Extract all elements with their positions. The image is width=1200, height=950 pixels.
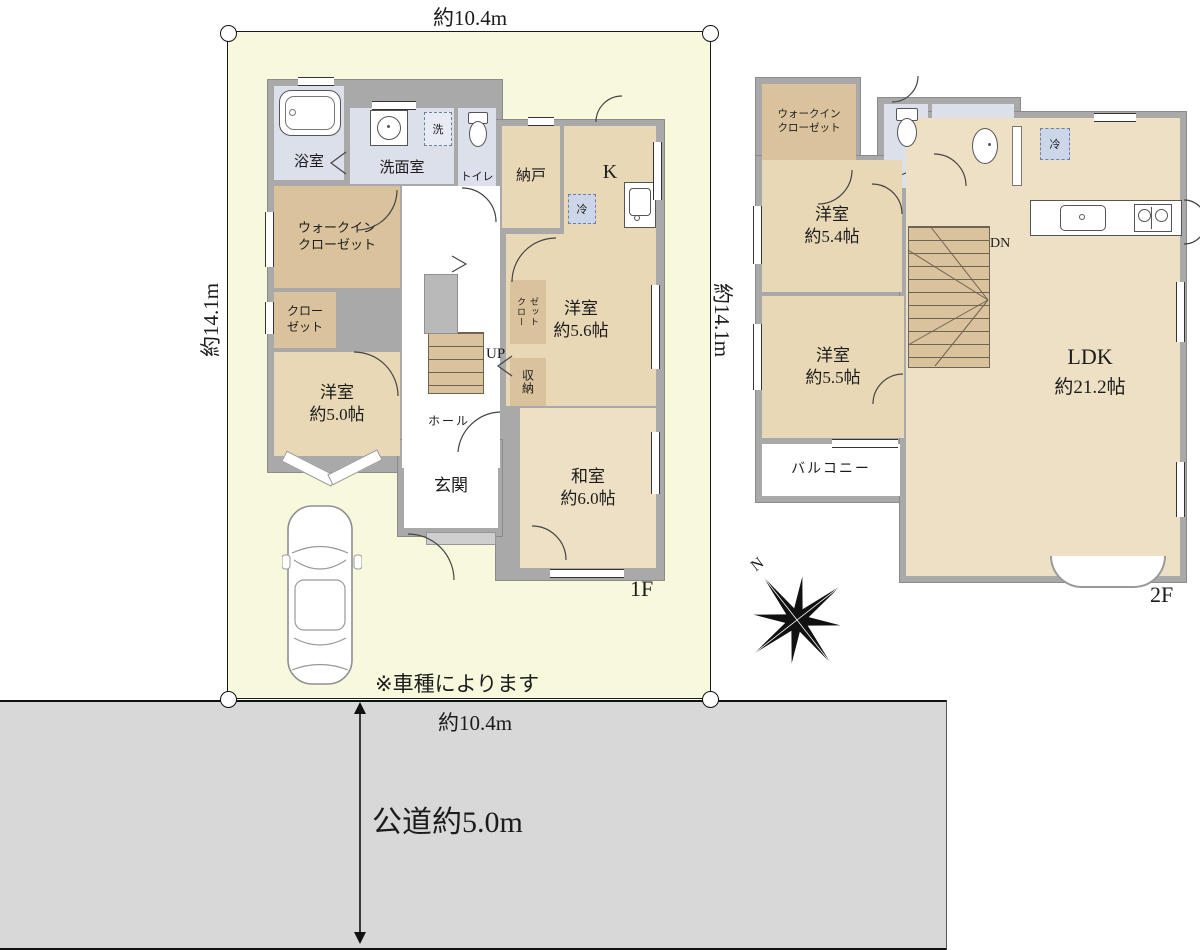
window (265, 302, 274, 334)
f1-fridge-label: 冷 (577, 201, 588, 217)
sink-icon (370, 110, 408, 146)
window (753, 324, 762, 390)
f1-mid-bedroom-name: 洋室 (564, 298, 598, 320)
dimension-top-width: 約10.4m (390, 2, 550, 32)
f1-kitchen-label: K (603, 159, 617, 185)
f1-fridge: 冷 (568, 194, 596, 224)
car-note: ※車種によります (375, 668, 539, 698)
f2-floor-label: 2F (1150, 582, 1173, 608)
f1-void-box (424, 274, 458, 334)
f1-west-bedroom-size: 約5.0帖 (309, 404, 364, 426)
f1-closet: クロー ゼット (274, 292, 336, 348)
dimension-right-height: 約14.1m (708, 265, 738, 375)
f2-wic-label-2: クローゼット (778, 122, 841, 136)
f2-counter-partition (1012, 126, 1022, 186)
bay-window-curved (1050, 556, 1166, 588)
window (372, 101, 416, 110)
f1-entrance: 玄関 (404, 444, 498, 528)
f1-mid-closet-label-1: クロー (515, 297, 528, 327)
f2-bedroom-a-name: 洋室 (815, 204, 849, 226)
toilet-icon (894, 108, 918, 146)
dimension-left-height: 約14.1m (195, 265, 225, 375)
f2-bedroom-b-name: 洋室 (816, 345, 850, 367)
window (651, 432, 660, 494)
f1-washroom-label: 洗面室 (379, 159, 424, 179)
f1-bathroom-label: 浴室 (294, 153, 324, 173)
lot-corner-marker (220, 691, 237, 708)
f1-storeroom-label: 納戸 (516, 167, 546, 187)
car-illustration (282, 498, 362, 693)
f1-tatami-room: 和室 約6.0帖 (520, 408, 656, 568)
entrance-porch-step (426, 532, 496, 545)
f1-wic-label-1: ウォークイン (298, 220, 376, 237)
f2-fridge-label: 冷 (1050, 136, 1061, 152)
f1-storage-label: 収納 (520, 369, 537, 395)
f1-tatami-name: 和室 (571, 466, 605, 488)
window (1176, 462, 1185, 517)
bathtub-icon (279, 90, 341, 136)
stove-icon (1134, 204, 1172, 232)
window (298, 77, 334, 86)
f2-bedroom-b-size: 約5.5帖 (805, 367, 860, 389)
f1-closet-label-1: クロー (287, 304, 323, 320)
window (550, 569, 624, 578)
f2-walkin-closet: ウォークイン クローゼット (762, 84, 856, 160)
f1-tatami-size: 約6.0帖 (560, 488, 615, 510)
f1-mid-bedroom-size: 約5.6帖 (553, 320, 608, 342)
lot-corner-marker (220, 25, 237, 42)
road-label: 公道約5.0m (372, 797, 523, 841)
window (528, 117, 554, 126)
kitchen-sink-icon (624, 182, 656, 228)
f1-staircase (428, 332, 484, 394)
window (1094, 113, 1136, 122)
f1-wic-label-2: クローゼット (298, 237, 376, 254)
f2-fridge: 冷 (1040, 128, 1070, 160)
f2-bedroom-a: 洋室 約5.4帖 (762, 160, 902, 292)
f1-entrance-label: 玄関 (434, 475, 468, 497)
f1-mid-closet-label-2: ゼット (528, 297, 541, 327)
window (651, 285, 660, 369)
f2-ldk-name: LDK (1030, 344, 1150, 370)
f1-walkin-closet: ウォークイン クローゼット (274, 186, 400, 288)
window (832, 439, 898, 448)
f1-hall-label: ホール (428, 412, 470, 429)
f2-staircase (908, 226, 990, 368)
f2-bedroom-b: 洋室 約5.5帖 (762, 296, 904, 438)
lot-corner-marker (702, 25, 719, 42)
f1-west-bedroom: 洋室 約5.0帖 (274, 352, 400, 456)
f1-laundry-label: 洗 (433, 121, 444, 137)
f1-storeroom: 納戸 (502, 126, 560, 228)
f1-west-bedroom-name: 洋室 (320, 382, 354, 404)
dimension-bottom-width: 約10.4m (395, 707, 555, 737)
f1-stairs-label: UP (486, 346, 505, 363)
f2-balcony-label: バルコニー (791, 461, 871, 479)
f1-floor-label: 1F (630, 576, 653, 602)
f2-ldk-size: 約21.2帖 (1030, 372, 1150, 399)
kitchen-sink-icon (1060, 205, 1106, 231)
window (653, 142, 662, 200)
window (265, 212, 274, 267)
f2-balcony: バルコニー (762, 444, 900, 496)
lot-corner-marker (702, 691, 719, 708)
window (753, 206, 762, 264)
window (1176, 282, 1185, 342)
f1-toilet-label: トイレ (461, 170, 494, 184)
f1-mid-closet: クロー ゼット (510, 280, 546, 344)
floorplan-canvas: 約10.4m 約14.1m 約14.1m 約10.4m 公道約5.0m ※車種に… (0, 0, 1200, 950)
f1-closet-label-2: ゼット (287, 320, 323, 336)
f2-bedroom-a-size: 約5.4帖 (804, 226, 859, 248)
washbasin-icon (972, 128, 998, 164)
washing-machine-icon: 洗 (424, 112, 452, 146)
f2-stairs-label: DN (990, 236, 1010, 252)
toilet-icon (466, 112, 488, 146)
f2-wic-label-1: ウォークイン (778, 108, 841, 122)
f1-storage: 収納 (510, 358, 546, 406)
